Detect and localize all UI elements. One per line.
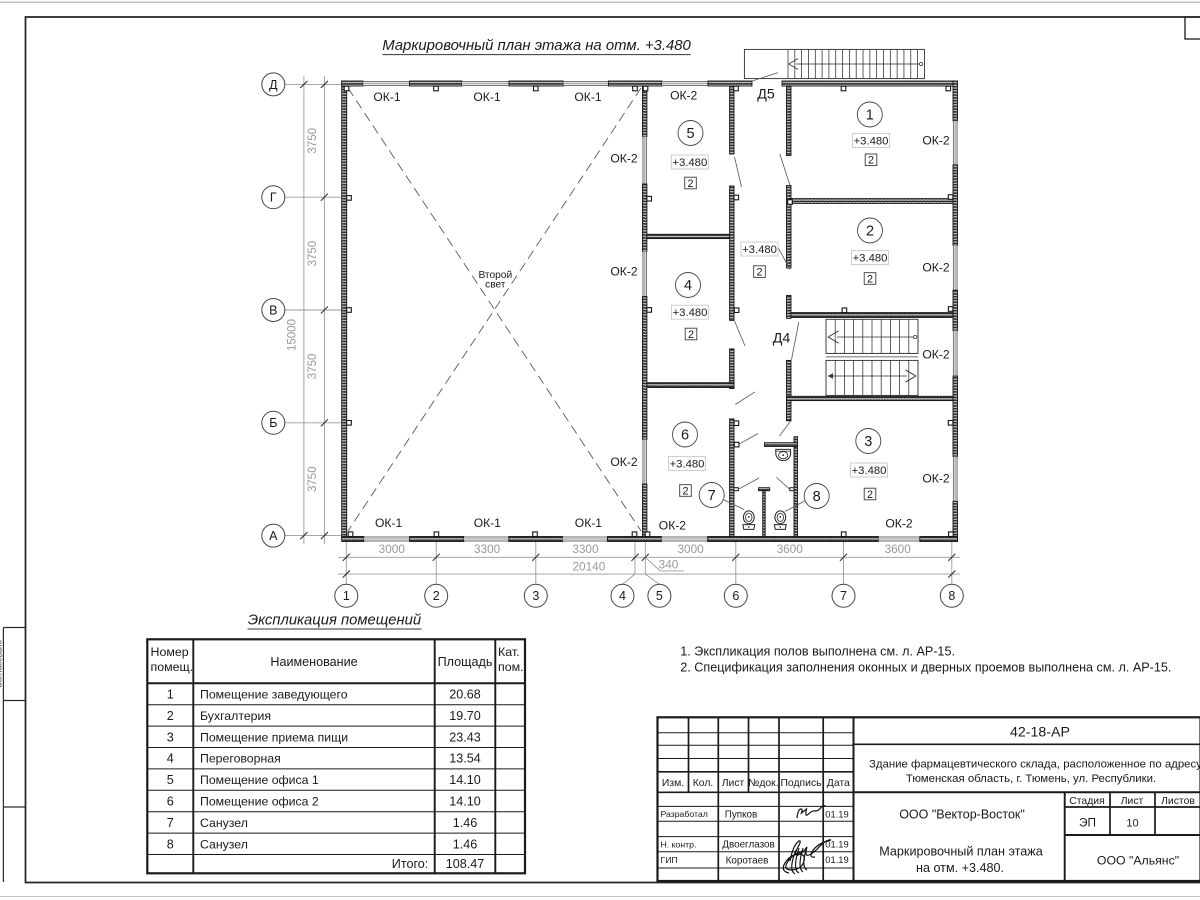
svg-text:8: 8 [167,837,174,851]
svg-text:ОК-2: ОК-2 [610,152,637,166]
svg-text:Лист: Лист [1121,796,1144,807]
svg-text:пом.: пом. [498,660,524,674]
svg-text:6: 6 [681,428,689,444]
svg-text:2: 2 [167,709,174,723]
svg-text:Разработал: Разработал [661,809,708,819]
svg-text:ОК-2: ОК-2 [610,455,637,469]
svg-text:Бухгалтерия: Бухгалтерия [200,709,271,723]
svg-text:Здание фармацевтического склад: Здание фармацевтического склада, располо… [869,758,1200,770]
svg-text:Подпись: Подпись [780,778,821,789]
svg-text:13.54: 13.54 [449,752,481,766]
svg-text:3: 3 [167,730,174,744]
svg-text:20140: 20140 [572,560,605,574]
svg-text:3750: 3750 [307,128,319,154]
svg-text:ОК-2: ОК-2 [659,519,686,533]
svg-text:8: 8 [948,589,955,603]
svg-text:2: 2 [756,267,762,279]
svg-text:6: 6 [167,795,174,809]
svg-text:Д4: Д4 [773,330,791,346]
svg-text:Лист: Лист [722,778,745,789]
svg-text:01.19: 01.19 [825,808,848,819]
svg-text:1. Экспликация полов выполнена: 1. Экспликация полов выполнена см. л. АР… [680,645,955,659]
svg-text:4: 4 [684,278,692,294]
svg-text:ГИП: ГИП [661,855,678,865]
svg-text:+3.480: +3.480 [672,157,707,169]
svg-text:Тюменская область, г. Тюмень,: Тюменская область, г. Тюмень, ул. Респуб… [906,773,1156,785]
svg-text:ООО "Альянс": ООО "Альянс" [1097,854,1179,868]
svg-text:Помещение офиса 1: Помещение офиса 1 [200,773,319,787]
svg-text:ОК-2: ОК-2 [922,348,949,362]
svg-text:5: 5 [167,773,174,787]
svg-text:Д: Д [269,78,278,92]
svg-text:ЭП: ЭП [1079,816,1096,830]
svg-text:+3.480: +3.480 [673,307,708,319]
svg-text:+3.480: +3.480 [742,244,777,256]
svg-text:Кол.: Кол. [693,778,714,789]
svg-text:14.10: 14.10 [449,773,481,787]
svg-text:3600: 3600 [777,542,804,556]
svg-text:2: 2 [687,178,693,190]
svg-text:Стадия: Стадия [1069,796,1104,807]
svg-text:В: В [269,303,277,317]
svg-text:Изм.: Изм. [662,778,684,789]
svg-text:Дата: Дата [827,778,850,789]
svg-text:1.46: 1.46 [453,816,478,830]
svg-text:свет: свет [485,280,506,291]
svg-text:Пупков: Пупков [725,810,758,821]
svg-text:1: 1 [167,688,174,702]
svg-text:Итого:: Итого: [392,857,429,871]
svg-text:2: 2 [688,329,694,341]
svg-text:108.47: 108.47 [446,857,485,871]
svg-text:Согласовано: Согласовано [0,639,4,688]
svg-text:5: 5 [656,589,663,603]
svg-text:Листов: Листов [1161,796,1195,807]
svg-text:3600: 3600 [885,542,912,556]
svg-text:Н. контр.: Н. контр. [661,839,697,849]
svg-text:ОК-1: ОК-1 [473,90,500,104]
svg-text:20.68: 20.68 [449,688,481,702]
svg-text:2: 2 [682,485,688,497]
svg-text:ОК-2: ОК-2 [670,89,697,103]
svg-text:15000: 15000 [287,319,299,351]
svg-text:4: 4 [167,752,174,766]
svg-text:3000: 3000 [677,542,704,556]
svg-text:3750: 3750 [307,466,319,492]
svg-text:ООО "Вектор-Восток": ООО "Вектор-Восток" [899,808,1025,822]
svg-text:ОК-1: ОК-1 [375,516,402,530]
svg-text:Помещение офиса 2: Помещение офиса 2 [200,795,319,809]
svg-text:340: 340 [659,557,679,571]
svg-text:2: 2 [433,589,440,603]
svg-text:2. Спецификация заполнения око: 2. Спецификация заполнения оконных и две… [680,660,1171,674]
svg-text:3300: 3300 [572,542,599,556]
svg-text:ОК-2: ОК-2 [885,517,912,531]
svg-text:Номер: Номер [151,645,189,659]
svg-text:10: 10 [1126,818,1138,830]
svg-text:ОК-1: ОК-1 [474,516,501,530]
svg-text:2: 2 [866,224,874,240]
svg-text:Переговорная: Переговорная [200,752,281,766]
svg-text:01.19: 01.19 [825,854,848,865]
svg-text:7: 7 [840,589,847,603]
svg-text:ОК-2: ОК-2 [922,261,949,275]
svg-text:+3.480: +3.480 [854,136,889,148]
svg-text:3: 3 [864,434,872,450]
svg-text:3750: 3750 [307,354,319,380]
svg-text:Наименование: Наименование [270,655,357,669]
svg-text:19.70: 19.70 [449,709,481,723]
svg-text:1: 1 [866,108,874,124]
svg-text:Помещение заведующего: Помещение заведующего [200,688,348,702]
svg-text:4: 4 [619,589,626,603]
svg-text:+3.480: +3.480 [852,465,887,477]
svg-text:Д5: Д5 [757,87,775,103]
svg-text:Площадь: Площадь [438,655,493,669]
svg-text:ОК-1: ОК-1 [575,516,602,530]
svg-text:+3.480: +3.480 [670,458,705,470]
svg-text:7: 7 [167,816,174,830]
svg-text:Санузел: Санузел [200,837,248,851]
svg-text:+3.480: +3.480 [853,253,888,265]
svg-text:Экспликация помещений: Экспликация помещений [248,613,421,629]
svg-text:2: 2 [867,273,873,285]
svg-text:ОК-2: ОК-2 [922,134,949,148]
svg-text:помещ.: помещ. [151,660,194,674]
svg-text:3000: 3000 [379,542,406,556]
svg-text:8: 8 [813,489,821,505]
svg-text:Б: Б [269,416,277,430]
svg-text:ОК-2: ОК-2 [610,265,637,279]
svg-text:Кат.: Кат. [498,645,520,659]
svg-text:2: 2 [867,489,873,501]
svg-text:2: 2 [868,155,874,167]
svg-text:Маркировочный план этажа на от: Маркировочный план этажа на отм. +3.480 [382,38,691,54]
svg-text:14.10: 14.10 [449,795,481,809]
svg-text:на отм. +3.480.: на отм. +3.480. [916,861,1004,875]
svg-text:1.46: 1.46 [453,837,478,851]
svg-text:Санузел: Санузел [200,816,248,830]
svg-text:ОК-1: ОК-1 [574,90,601,104]
svg-text:3: 3 [532,589,539,603]
svg-text:7: 7 [708,488,716,504]
svg-text:6: 6 [732,589,739,603]
svg-text:42-18-АР: 42-18-АР [1010,724,1070,740]
svg-text:Двоеглазов: Двоеглазов [722,840,775,851]
svg-text:3750: 3750 [307,241,319,267]
svg-text:Г: Г [270,191,277,205]
svg-text:3300: 3300 [474,542,501,556]
svg-text:Маркировочный план этажа: Маркировочный план этажа [879,845,1042,859]
svg-text:5: 5 [686,126,694,142]
svg-text:1: 1 [343,589,350,603]
svg-text:Помещение приема пищи: Помещение приема пищи [200,730,348,744]
svg-text:ОК-1: ОК-1 [373,90,400,104]
svg-text:23.43: 23.43 [449,730,481,744]
svg-text:Коротаев: Коротаев [726,855,769,866]
svg-text:А: А [269,529,278,543]
svg-text:ОК-2: ОК-2 [922,472,949,486]
svg-text:№док.: №док. [748,778,778,789]
